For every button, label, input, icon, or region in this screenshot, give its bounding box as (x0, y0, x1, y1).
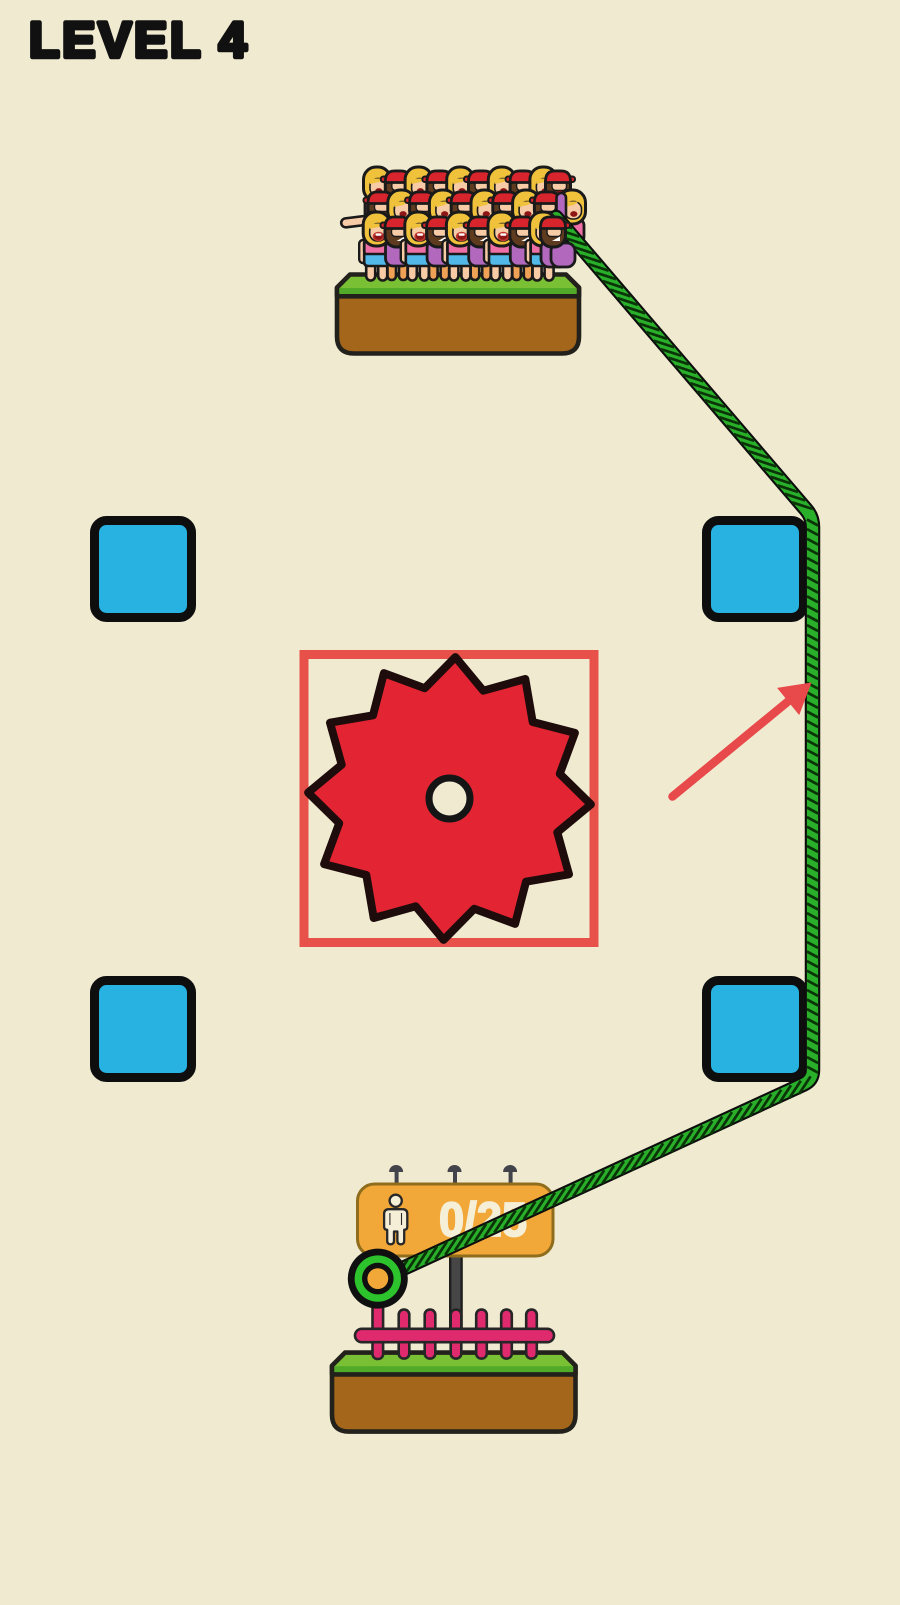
svg-text:LEVEL 4: LEVEL 4 (29, 12, 249, 68)
